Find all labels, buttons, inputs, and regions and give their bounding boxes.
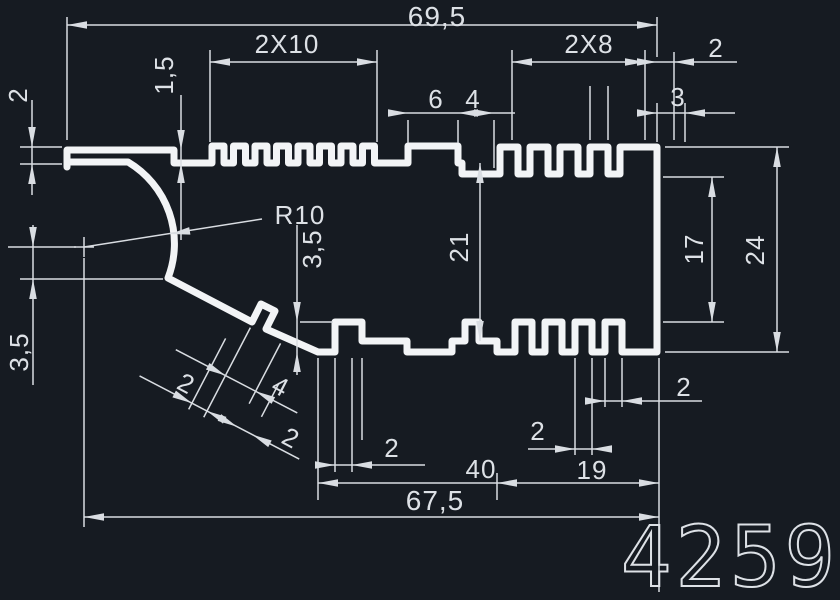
- dim-bottom-tooth-mid: 2: [384, 433, 399, 463]
- dim-overall-width-bottom: 67,5: [406, 485, 465, 516]
- part-number: 4259: [621, 508, 839, 600]
- technical-drawing: 4 2 2 69,5 2X10 2X8 2 6 4 3 2 1,5 3,5 3,…: [0, 0, 840, 600]
- dim-overall-width-top: 69,5: [408, 1, 467, 32]
- dim-bottom-tooth-right-up: 2: [676, 372, 691, 402]
- dim-bottom-span-19: 19: [577, 455, 608, 485]
- dim-inner-height: 21: [444, 232, 474, 263]
- dim-wall-top-right: 2: [708, 33, 723, 63]
- dim-teeth-group-right: 2X8: [564, 29, 613, 59]
- dim-bump-width: 6: [428, 84, 443, 114]
- dim-left-offset-height: 3,5: [4, 332, 34, 371]
- dim-bottom-tooth-right-low: 2: [530, 416, 545, 446]
- cad-viewport[interactable]: 4 2 2 69,5 2X10 2X8 2 6 4 3 2 1,5 3,5 3,…: [0, 0, 840, 600]
- dim-overall-height-right: 24: [740, 235, 770, 266]
- dimension-lines: [32, 25, 777, 517]
- dim-fillet-radius: R10: [275, 200, 326, 230]
- dim-right-inner-height: 17: [679, 234, 709, 265]
- dim-step-height: 1,5: [149, 55, 179, 94]
- dim-left-cap-thickness: 2: [3, 87, 33, 102]
- dimension-arrowheads: [28, 21, 781, 521]
- dim-teeth-group-left: 2X10: [255, 29, 320, 59]
- extrusion-profile-outline: [67, 146, 657, 352]
- dim-notch-width: 4: [465, 84, 480, 114]
- dim-diag-tab-width: 4: [267, 369, 295, 403]
- dim-bottom-span-40: 40: [466, 454, 497, 484]
- dim-diag-wall-b: 2: [277, 421, 305, 455]
- dim-tab-drop-height: 3,5: [297, 229, 327, 268]
- dim-right-end-flat: 3: [670, 82, 685, 112]
